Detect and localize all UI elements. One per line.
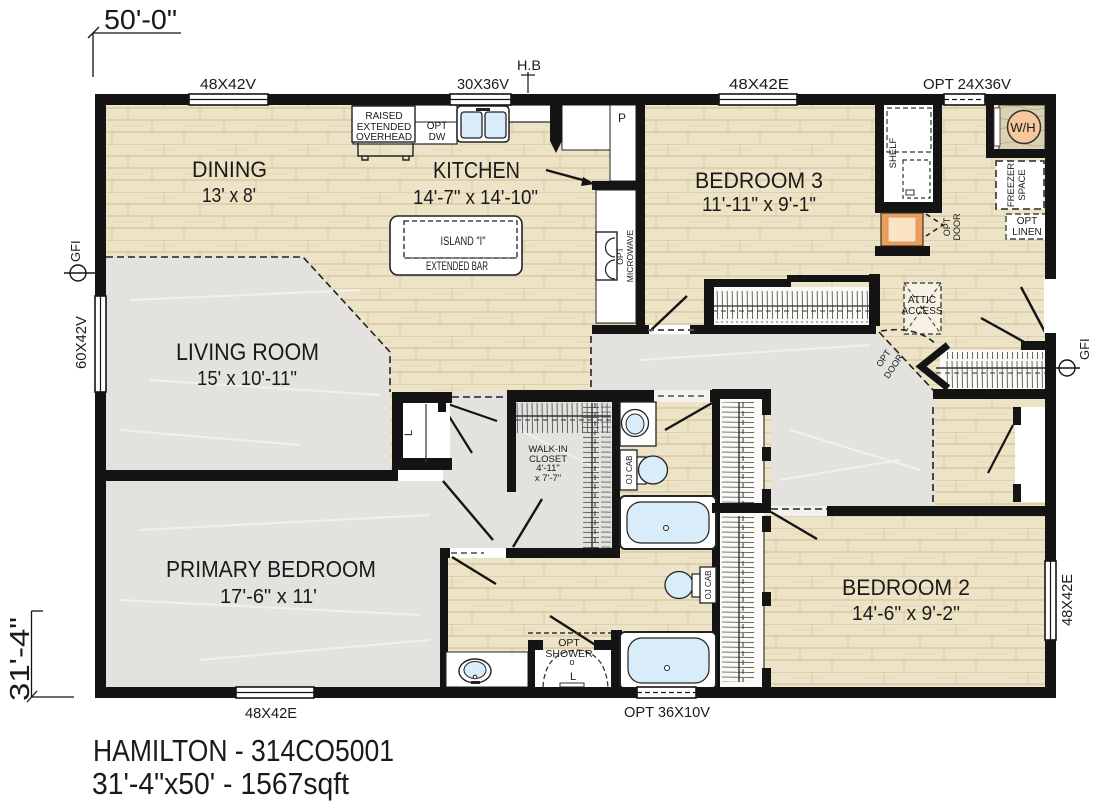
svg-text:GFI: GFI [1077, 338, 1092, 360]
svg-text:H.B: H.B [517, 57, 541, 73]
svg-text:LINEN: LINEN [1012, 227, 1041, 238]
svg-text:ACCESS: ACCESS [901, 306, 942, 317]
svg-text:L: L [403, 430, 415, 436]
svg-text:14'-6" x 9'-2": 14'-6" x 9'-2" [852, 602, 960, 625]
svg-text:OPT: OPT [615, 247, 625, 264]
svg-text:HAMILTON - 314CO5001: HAMILTON - 314CO5001 [93, 733, 394, 768]
svg-text:RAISED: RAISED [365, 111, 402, 122]
svg-text:ATTIC: ATTIC [908, 295, 936, 306]
svg-text:KITCHEN: KITCHEN [433, 157, 520, 183]
svg-text:15' x 10'-11": 15' x 10'-11" [197, 367, 297, 390]
svg-text:48X42E: 48X42E [729, 76, 789, 93]
svg-text:ISLAND "I": ISLAND "I" [441, 234, 486, 248]
svg-text:OPT 36X10V: OPT 36X10V [624, 704, 710, 721]
svg-text:EXTENDED BAR: EXTENDED BAR [426, 261, 488, 273]
svg-text:13' x 8': 13' x 8' [202, 184, 256, 207]
svg-text:MICROWAVE: MICROWAVE [625, 229, 635, 282]
svg-text:OPT: OPT [1017, 216, 1038, 227]
svg-text:DINING: DINING [192, 157, 267, 182]
svg-text:30X36V: 30X36V [457, 76, 509, 93]
svg-text:48X42V: 48X42V [200, 76, 256, 93]
svg-text:OPT: OPT [942, 217, 952, 236]
svg-text:17'-6" x 11': 17'-6" x 11' [220, 585, 317, 608]
svg-text:DW: DW [429, 132, 446, 143]
svg-text:LIVING ROOM: LIVING ROOM [176, 339, 319, 366]
svg-text:P: P [618, 111, 626, 125]
svg-text:x 7'-7": x 7'-7" [535, 473, 561, 484]
svg-text:GFI: GFI [68, 240, 83, 262]
svg-text:OPT: OPT [427, 121, 448, 132]
svg-text:48X42E: 48X42E [245, 705, 297, 722]
svg-text:BEDROOM 2: BEDROOM 2 [842, 575, 970, 600]
svg-text:31'-4": 31'-4" [4, 617, 35, 701]
svg-text:PRIMARY BEDROOM: PRIMARY BEDROOM [166, 556, 376, 582]
svg-text:o: o [569, 657, 574, 667]
svg-text:BEDROOM 3: BEDROOM 3 [695, 168, 823, 193]
svg-text:SPACE: SPACE [1017, 169, 1028, 201]
svg-text:60X42V: 60X42V [73, 316, 90, 369]
svg-text:14'-7" x 14'-10": 14'-7" x 14'-10" [413, 186, 538, 209]
svg-text:SHELF: SHELF [888, 137, 899, 168]
svg-text:50'-0": 50'-0" [104, 4, 177, 35]
svg-text:W/H: W/H [1010, 120, 1035, 135]
svg-text:OVERHEAD: OVERHEAD [356, 132, 412, 143]
svg-text:48X42E: 48X42E [1059, 574, 1076, 626]
svg-text:OJ CAB: OJ CAB [625, 456, 634, 485]
svg-text:L: L [570, 671, 576, 683]
svg-text:FREEZER: FREEZER [1006, 163, 1017, 207]
svg-text:OJ CAB: OJ CAB [704, 571, 713, 600]
svg-text:11'-11" x 9'-1": 11'-11" x 9'-1" [702, 193, 816, 216]
svg-text:OPT 24X36V: OPT 24X36V [923, 76, 1011, 93]
svg-text:DOOR: DOOR [952, 213, 962, 241]
svg-text:31'-4"x50' - 1567sqft: 31'-4"x50' - 1567sqft [92, 766, 349, 801]
